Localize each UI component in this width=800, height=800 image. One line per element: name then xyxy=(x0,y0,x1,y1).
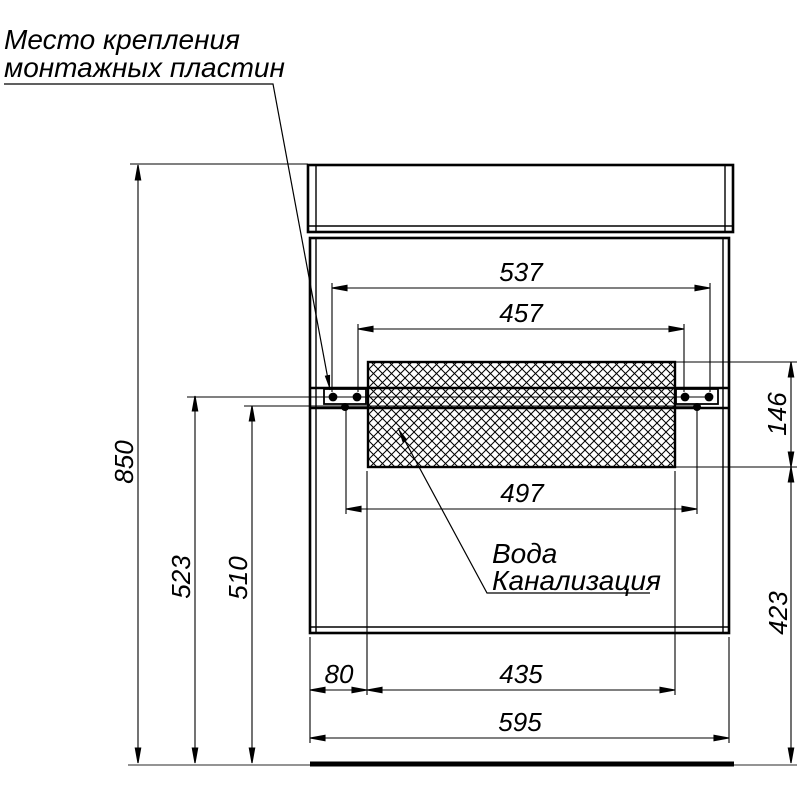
utilities-hatch-zone xyxy=(368,362,675,467)
dim-text-146: 146 xyxy=(762,392,792,436)
dim-text-80: 80 xyxy=(325,659,354,689)
dim-text-850: 850 xyxy=(109,440,139,484)
floor xyxy=(128,764,797,765)
dim-text-537: 537 xyxy=(499,257,544,287)
screw-dot-lower xyxy=(341,403,349,411)
mounting-note-line1: Место крепления xyxy=(4,24,240,55)
technical-drawing-canvas: Место крепления монтажных пластин Вода К… xyxy=(0,0,800,800)
screw-dot xyxy=(329,393,338,402)
dim-text-457: 457 xyxy=(499,298,544,328)
dimension-850 xyxy=(130,164,308,763)
screw-dot xyxy=(353,393,362,402)
mounting-note-leader xyxy=(4,84,330,390)
dim-text-435: 435 xyxy=(499,659,543,689)
mounting-note-line2: монтажных пластин xyxy=(4,52,285,83)
vanity-installation-diagram: Место крепления монтажных пластин Вода К… xyxy=(0,0,800,800)
dim-text-523: 523 xyxy=(166,555,196,599)
dim-text-510: 510 xyxy=(223,556,253,600)
screw-dot xyxy=(705,393,714,402)
dim-text-595: 595 xyxy=(498,707,542,737)
countertop xyxy=(308,165,733,232)
utilities-label-sewer: Канализация xyxy=(492,565,661,596)
dim-text-423: 423 xyxy=(763,591,793,635)
screw-dot xyxy=(681,393,690,402)
dim-text-497: 497 xyxy=(500,478,545,508)
